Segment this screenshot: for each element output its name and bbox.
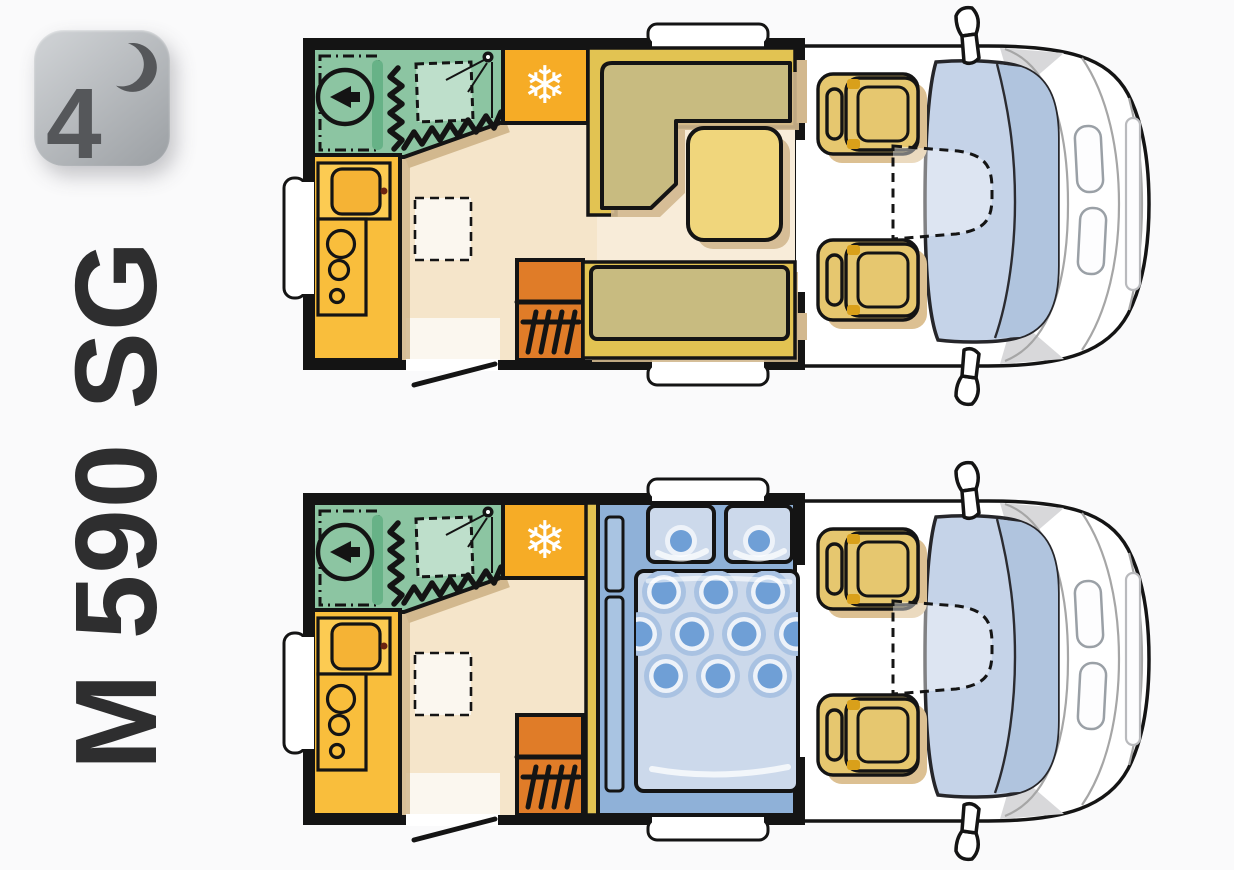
page-background: 4 M 590 SG xyxy=(0,0,1234,870)
bench-seat-cushion xyxy=(591,267,788,339)
duvet xyxy=(618,570,818,791)
floorplan-night xyxy=(284,463,1149,860)
pillow-left xyxy=(648,506,714,562)
dinette-table xyxy=(688,128,781,240)
cab-walkthrough-opening xyxy=(796,140,807,292)
pillow-right xyxy=(726,506,792,562)
floorplan-day xyxy=(284,8,1149,405)
dinette-lounge xyxy=(583,48,799,362)
bed-side-panel xyxy=(606,597,623,791)
double-bed xyxy=(586,503,818,815)
floorplans-canvas: ❄ xyxy=(0,0,1234,870)
bed-side-panel xyxy=(606,517,623,591)
